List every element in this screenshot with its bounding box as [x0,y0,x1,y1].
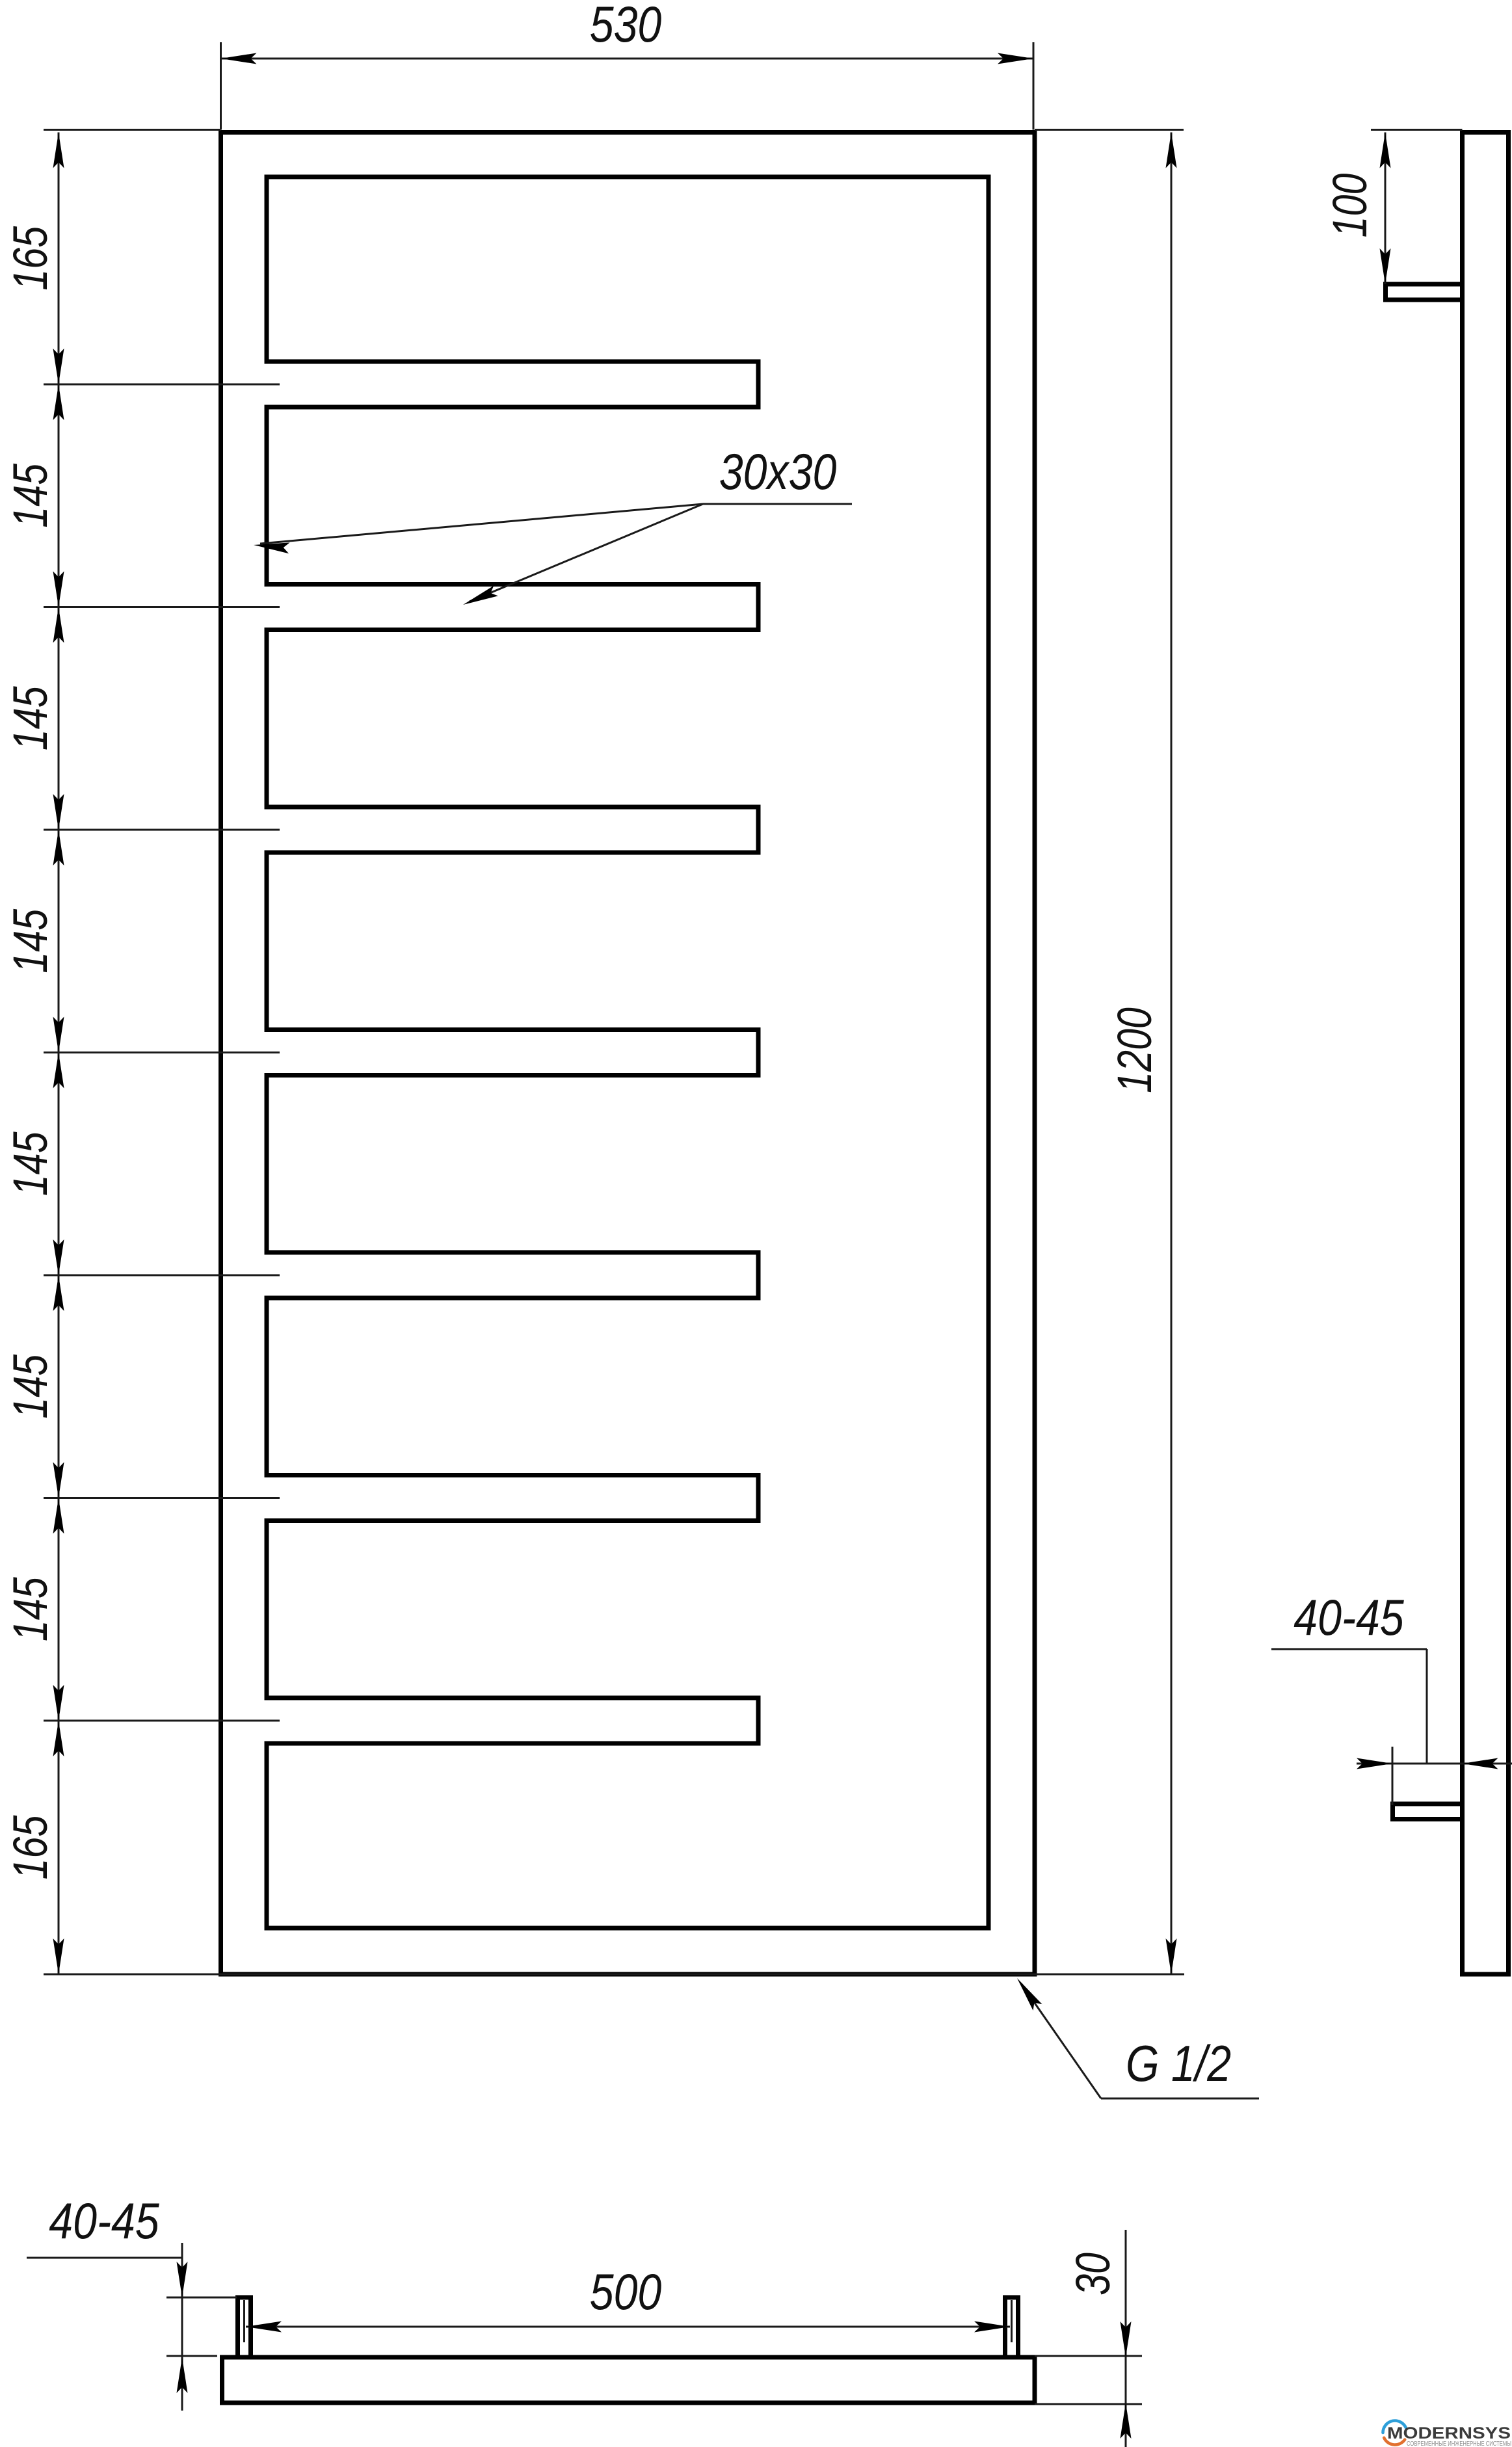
svg-text:145: 145 [4,463,58,527]
svg-text:30: 30 [1067,2253,1121,2295]
svg-text:145: 145 [4,1354,58,1418]
svg-text:СОВРЕМЕННЫЕ ИНЖЕНЕРНЫЕ СИСТЕМЫ: СОВРЕМЕННЫЕ ИНЖЕНЕРНЫЕ СИСТЕМЫ [1407,2440,1511,2447]
svg-text:500: 500 [590,2264,662,2320]
svg-text:40-45: 40-45 [1293,1589,1404,1646]
svg-text:145: 145 [4,908,58,973]
svg-text:145: 145 [4,1577,58,1641]
svg-text:100: 100 [1323,174,1377,238]
svg-text:165: 165 [4,1815,58,1879]
svg-text:G 1/2: G 1/2 [1126,2035,1231,2092]
svg-text:165: 165 [4,226,58,290]
svg-text:530: 530 [590,0,662,53]
svg-text:145: 145 [4,686,58,750]
svg-text:145: 145 [4,1131,58,1196]
svg-text:1200: 1200 [1108,1007,1162,1093]
svg-text:30x30: 30x30 [719,443,837,500]
svg-text:40-45: 40-45 [49,2193,159,2249]
